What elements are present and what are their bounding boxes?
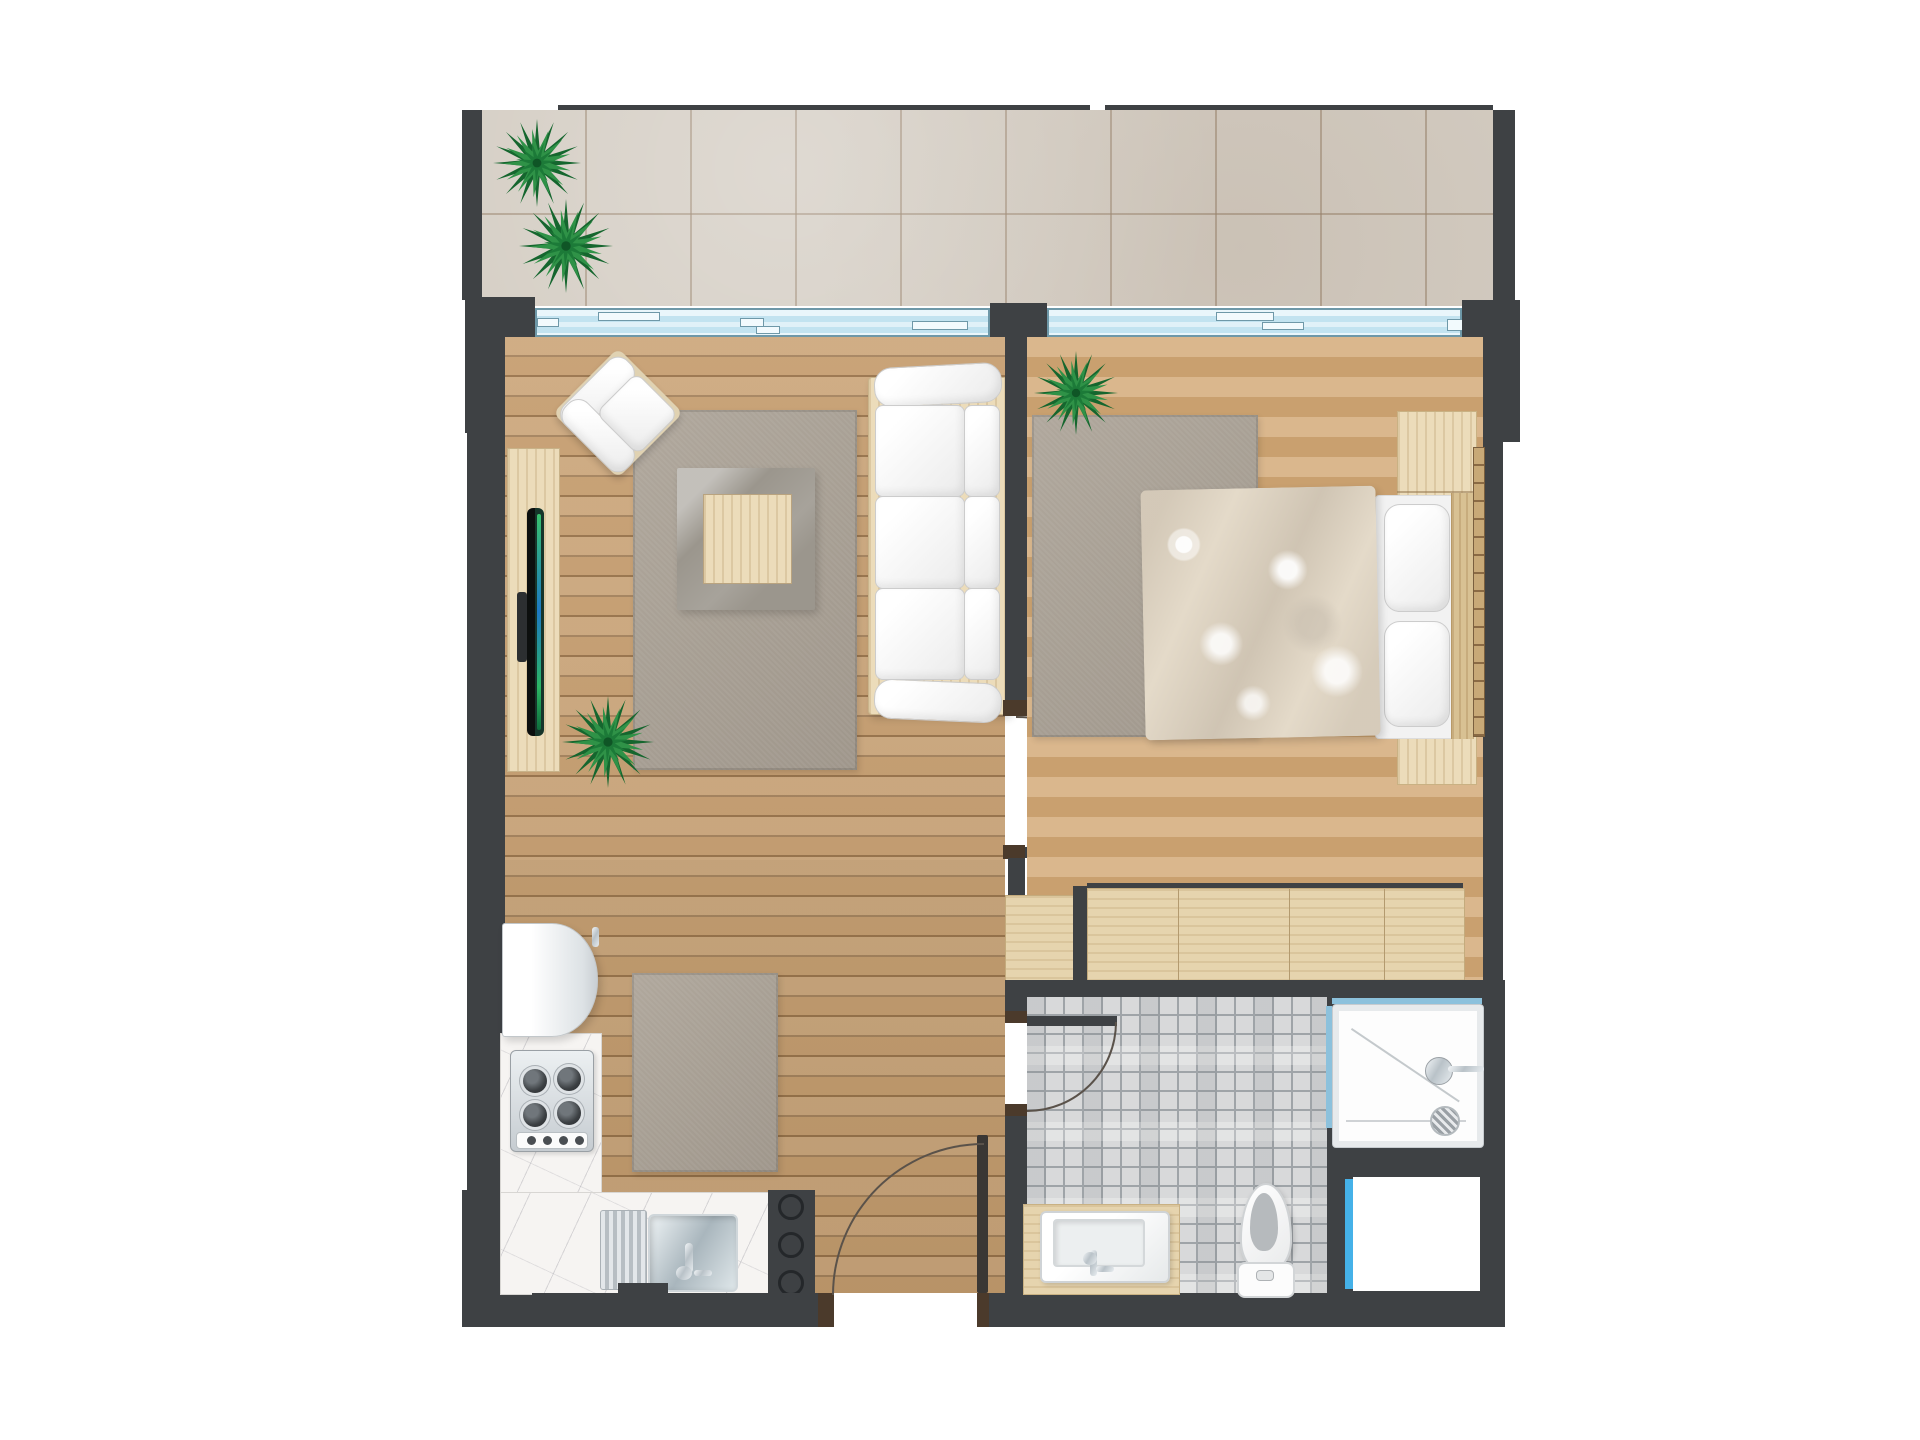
hob-knob bbox=[575, 1136, 584, 1145]
shower-glass-door bbox=[1326, 1006, 1332, 1128]
shower-arm bbox=[1448, 1066, 1484, 1072]
partition-wall bbox=[1005, 335, 1027, 703]
appliance-block bbox=[768, 1190, 815, 1293]
appliance-ring bbox=[778, 1194, 804, 1220]
tv bbox=[527, 508, 544, 736]
window-handle bbox=[1216, 312, 1274, 321]
sofa-armrest bbox=[873, 678, 1003, 724]
hob-knob bbox=[543, 1136, 552, 1145]
shower-glass-top bbox=[1332, 998, 1482, 1004]
fridge-handle bbox=[592, 927, 599, 947]
plant-icon bbox=[519, 199, 613, 293]
door-jamb bbox=[1005, 1104, 1027, 1116]
closet-cabinet bbox=[1005, 895, 1075, 982]
window-handle bbox=[912, 321, 968, 330]
utility-shaft bbox=[1353, 1177, 1480, 1291]
sink-basin bbox=[648, 1214, 738, 1292]
wardrobe-seam bbox=[1384, 889, 1385, 981]
shower-tray bbox=[1332, 1004, 1484, 1148]
sofa-seat-cushion bbox=[875, 405, 965, 497]
balcony-top-edge bbox=[1105, 105, 1493, 110]
sink-drainer bbox=[600, 1210, 647, 1290]
faucet-spout bbox=[676, 1266, 692, 1280]
closet-divider-wall bbox=[1073, 886, 1087, 982]
hob-burner bbox=[523, 1103, 547, 1127]
door-jamb bbox=[1003, 700, 1029, 716]
sofa-seat-cushion bbox=[875, 588, 965, 680]
bed-pillow bbox=[1384, 504, 1450, 612]
sofa-armrest bbox=[873, 362, 1003, 409]
tv-bracket bbox=[517, 592, 527, 662]
bed-pillow bbox=[1384, 621, 1450, 727]
hob-burner bbox=[523, 1069, 547, 1093]
bottom-wall-step bbox=[618, 1283, 668, 1293]
faucet-handle bbox=[694, 1270, 712, 1276]
door-jamb bbox=[977, 1293, 989, 1327]
hob-burner bbox=[557, 1067, 581, 1091]
sofa-back-cushion bbox=[964, 588, 1000, 680]
vanity-faucet-spout bbox=[1083, 1252, 1097, 1265]
right-wall bbox=[1483, 440, 1503, 997]
bed-duvet bbox=[1140, 486, 1380, 741]
sofa-back-cushion bbox=[964, 405, 1000, 497]
appliance-ring bbox=[778, 1232, 804, 1258]
tv-screen bbox=[537, 514, 541, 730]
floor-plan bbox=[0, 0, 1920, 1440]
sofa-seat-cushion bbox=[875, 496, 965, 589]
coffee-table-top bbox=[703, 494, 792, 584]
toilet-flush-button bbox=[1256, 1270, 1274, 1281]
bottom-wall-left bbox=[532, 1293, 832, 1327]
balcony-top-edge bbox=[558, 105, 1090, 110]
fridge bbox=[502, 923, 598, 1037]
hob-knob bbox=[559, 1136, 568, 1145]
wardrobe-seam bbox=[1178, 889, 1179, 981]
door-jamb bbox=[1005, 1011, 1027, 1023]
headboard bbox=[1451, 493, 1474, 739]
wardrobe-top-edge bbox=[1087, 883, 1463, 888]
balcony-left-wall bbox=[462, 110, 482, 300]
window-handle bbox=[756, 326, 780, 334]
window-handle bbox=[537, 318, 559, 327]
plant-icon bbox=[562, 696, 654, 788]
kitchen-rug bbox=[632, 973, 778, 1172]
wardrobe bbox=[1087, 888, 1465, 982]
shower-drain bbox=[1430, 1106, 1460, 1136]
hob-knob bbox=[527, 1136, 536, 1145]
balcony-right-wall bbox=[1493, 110, 1515, 302]
sofa-back-cushion bbox=[964, 496, 1000, 589]
utility-shaft-window bbox=[1345, 1179, 1353, 1289]
hob-control-strip bbox=[516, 1132, 588, 1149]
window-mid-pillar bbox=[990, 303, 1047, 337]
plant-icon bbox=[1034, 351, 1118, 435]
wall-radiator bbox=[1473, 447, 1485, 737]
wardrobe-seam bbox=[1289, 889, 1290, 981]
window-handle bbox=[1262, 322, 1304, 330]
vanity-faucet-handle bbox=[1096, 1266, 1114, 1272]
hob-burner bbox=[557, 1101, 581, 1125]
bedroom-bottom-wall bbox=[1005, 980, 1505, 998]
door-jamb bbox=[1003, 845, 1025, 859]
plant-icon bbox=[493, 119, 581, 207]
balcony-floor bbox=[482, 110, 1493, 306]
door-jamb bbox=[818, 1293, 834, 1327]
vanity-basin bbox=[1053, 1219, 1145, 1267]
window-handle bbox=[598, 312, 660, 321]
